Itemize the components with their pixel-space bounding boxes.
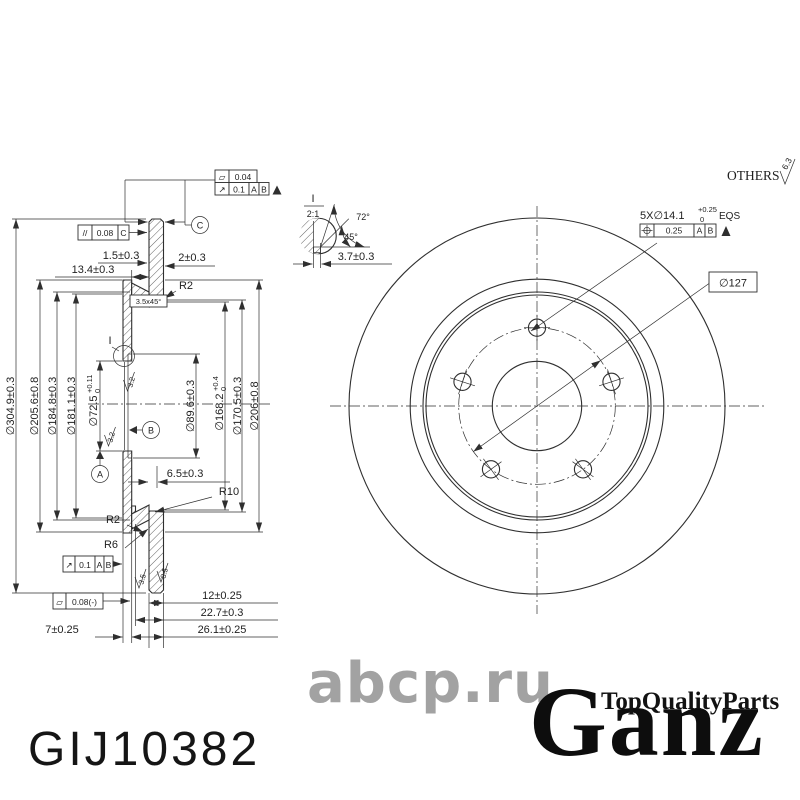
gdt-frame-bottom-runout: ↗ 0.1 A B <box>63 556 122 572</box>
gdt-flatness-top-value: 0.04 <box>235 172 252 182</box>
dim-r2-bottom: R2 <box>106 514 120 526</box>
others-roughness: 6.3 <box>780 156 795 171</box>
dim-t12: 12±0.25 <box>202 590 242 602</box>
datum-b-triangle <box>129 426 137 434</box>
runout-bracket <box>125 180 215 225</box>
holes-sub: 0 <box>700 215 704 224</box>
runout-icon: ↗ <box>218 186 225 196</box>
note-triangle-icon <box>273 186 282 195</box>
finish-32b: 3.2 <box>105 431 116 443</box>
section-view: I <box>5 170 282 648</box>
dim-t227: 22.7±0.3 <box>201 607 244 619</box>
others-label: OTHERS <box>727 168 780 183</box>
parallelism-icon: // <box>83 228 88 238</box>
dim-r6: R6 <box>104 539 118 551</box>
detail-view: I 2:1 72° 45° 3.7±0.3 <box>293 193 392 268</box>
svg-text:∅72.5: ∅72.5 <box>88 396 100 427</box>
detail-groove-width: 3.7±0.3 <box>338 251 375 263</box>
general-note: OTHERS 6.3 <box>727 156 795 184</box>
datum-c-label: C <box>197 221 204 231</box>
chamfer-note: 3.5x45° <box>136 297 162 306</box>
part-number: GIJ10382 <box>28 726 260 774</box>
dim-d1811: ∅181.1±0.3 <box>66 377 78 435</box>
dim-w15: 1.5±0.3 <box>103 250 140 262</box>
gdt-runout-top-datum1: A <box>251 185 257 195</box>
dim-r10: R10 <box>219 486 239 498</box>
gdt-runout-top-datum2: B <box>261 185 267 195</box>
detail-i-marker-label: I <box>108 335 111 347</box>
dim-d2056: ∅205.6±0.8 <box>29 377 41 435</box>
dim-w134: 13.4±0.3 <box>72 264 115 276</box>
datum-b-label: B <box>148 426 154 436</box>
gdt-runout-top-value: 0.1 <box>233 185 245 195</box>
dim-t261: 26.1±0.25 <box>198 624 247 636</box>
gdt-position-value: 0.25 <box>666 226 683 236</box>
dim-w2: 2±0.3 <box>178 252 205 264</box>
note-triangle-icon <box>722 226 731 236</box>
gdt-runout-bottom-value: 0.1 <box>79 560 91 570</box>
dim-r2-top: R2 <box>179 280 193 292</box>
gdt-parallelism-datum: C <box>120 228 126 238</box>
dim-w65: 6.5±0.3 <box>167 468 204 480</box>
detail-scale: 2:1 <box>307 209 320 219</box>
dim-d1705: ∅170.5±0.3 <box>232 377 244 435</box>
holes-count: 5X∅14.1 <box>640 210 684 222</box>
flatness-icon: ▱ <box>219 173 226 183</box>
dim-t7: 7±0.25 <box>45 624 79 636</box>
bolt-circle-dim: ∅127 <box>719 278 747 290</box>
dim-d1682: ∅168.2 +0.4 0 <box>211 376 228 430</box>
flatness-icon: ▱ <box>56 598 63 608</box>
holes-sup: +0.25 <box>698 205 717 214</box>
detail-hatch-floor <box>314 247 321 253</box>
svg-text:0: 0 <box>93 389 102 393</box>
brand-tagline: TopQualityParts <box>601 689 779 714</box>
detail-angle-72: 72° <box>356 212 370 222</box>
gdt-position-datum2: B <box>708 226 714 236</box>
dim-d206: ∅206±0.8 <box>249 381 261 430</box>
gdt-frame-parallelism: // 0.08 C <box>78 225 147 240</box>
dim-d304: ∅304.9±0.3 <box>5 377 17 435</box>
bolt-hole-callout: 5X∅14.1 +0.25 0 EQS 0.25 A B <box>640 205 740 237</box>
detail-angle-45: 45° <box>344 232 358 242</box>
svg-text:0: 0 <box>219 387 228 391</box>
dim-d725: ∅72.5 +0.11 0 <box>85 375 102 427</box>
front-view: ∅127 5X∅14.1 +0.25 0 EQS 0.25 A B <box>330 205 764 614</box>
brand-logo: Ganz <box>529 672 765 772</box>
gdt-runout-bottom-datum2: B <box>106 560 112 570</box>
gdt-flatness-bottom-value: 0.08(-) <box>72 597 97 607</box>
watermark-logo: abcp.ru <box>307 656 554 712</box>
hat-plate-bottom-section <box>123 451 132 533</box>
holes-eqs: EQS <box>719 211 740 222</box>
detail-label: I <box>311 193 314 205</box>
gdt-position-datum1: A <box>697 226 703 236</box>
datum-a-triangle <box>96 451 104 459</box>
finish-35a: 3.5 <box>136 573 147 585</box>
gdt-runout-bottom-datum1: A <box>97 560 103 570</box>
runout-icon: ↗ <box>65 561 72 571</box>
friction-ring-top-section <box>149 219 164 301</box>
gdt-frame-bottom-flatness: ▱ 0.08(-) <box>53 593 130 609</box>
dim-d1848: ∅184.8±0.3 <box>47 377 59 435</box>
svg-text:∅168.2: ∅168.2 <box>214 393 226 430</box>
gdt-parallelism-value: 0.08 <box>97 228 114 238</box>
gdt-frame-top: ▱ 0.04 ↗ 0.1 A B <box>215 170 282 196</box>
datum-a-label: A <box>97 470 103 480</box>
finish-32a: 3.2 <box>125 376 136 388</box>
finish-35b: 3.5 <box>158 567 169 579</box>
drawing-page: I <box>0 0 800 800</box>
dim-d896: ∅89.6±0.3 <box>185 380 197 432</box>
